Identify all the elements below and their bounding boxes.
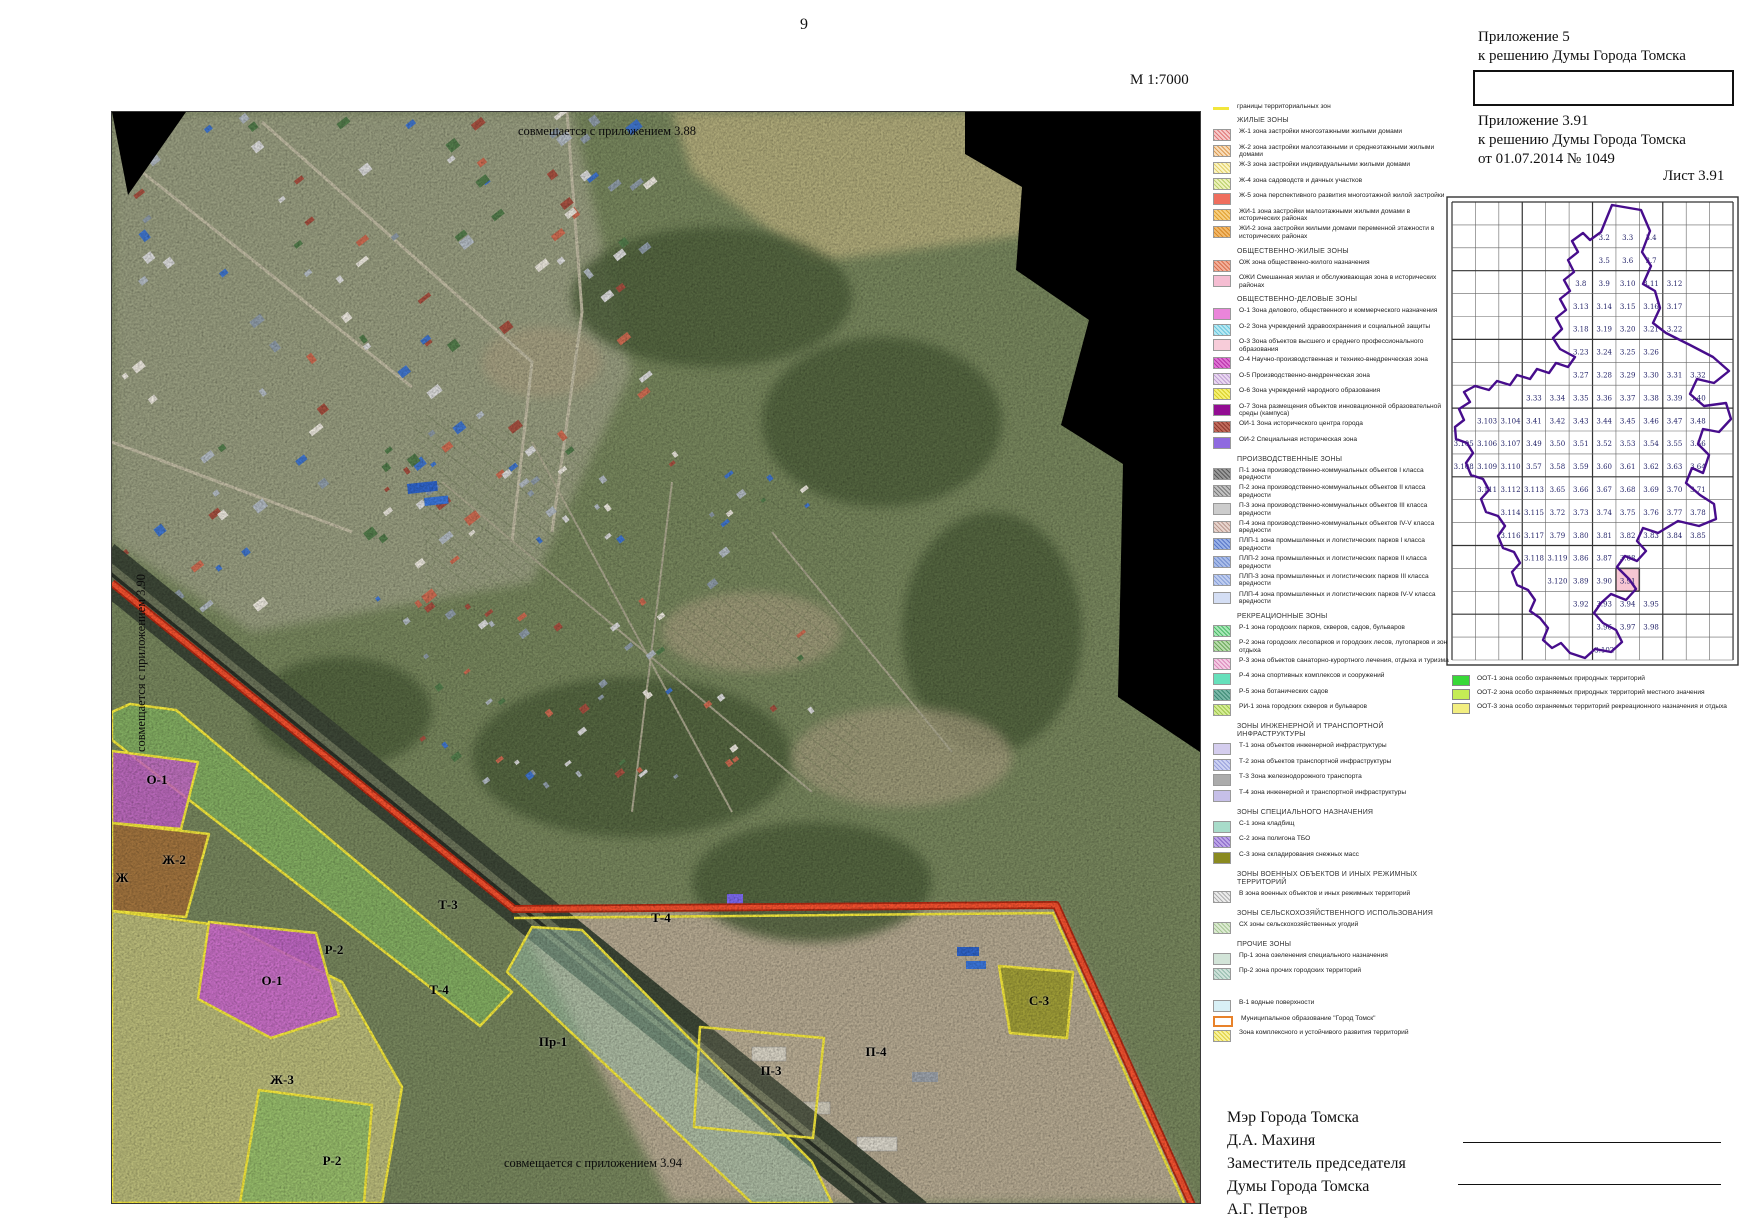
sheet-number: 3.89 — [1573, 578, 1589, 586]
legend-label: ПЛП-2 зона промышленных и логистических … — [1239, 555, 1453, 570]
sheet-number: 3.74 — [1596, 509, 1612, 517]
sheet-number: 3.5 — [1599, 257, 1610, 265]
legend-item: РИ-1 зона городских скверов и бульваров — [1213, 703, 1453, 716]
map-zone-label: С-3 — [1029, 993, 1049, 1009]
map-zone-label: П-3 — [761, 1063, 782, 1079]
legend-item: Р-2 зона городских лесопарков и городски… — [1213, 639, 1453, 654]
sheet-number: 3.19 — [1596, 326, 1612, 334]
sheet-number: 3.86 — [1573, 555, 1589, 563]
legend-label: Т-4 зона инженерной и транспортной инфра… — [1239, 789, 1406, 797]
page-number: 9 — [800, 16, 808, 34]
annex-line3: Приложение 3.91 — [1478, 112, 1748, 131]
legend-label: Зона комплексного и устойчивого развития… — [1239, 1029, 1409, 1037]
official-line: Д.А. Махиня — [1227, 1129, 1487, 1152]
legend-swatch — [1213, 388, 1231, 400]
legend-section-header: ОБЩЕСТВЕННО-ДЕЛОВЫЕ ЗОНЫ — [1237, 296, 1453, 304]
sheet-number: 3.25 — [1620, 349, 1636, 357]
sheet-number: 3.45 — [1620, 417, 1636, 425]
legend-item: О-5 Производственно-внедренческая зона — [1213, 372, 1453, 385]
sheet-number: 3.109 — [1477, 463, 1497, 471]
legend-swatch — [1213, 193, 1231, 205]
legend-item: Муниципальное образование "Город Томск" — [1213, 1015, 1453, 1027]
legend-label: Пр-1 зона озеленения специального назнач… — [1239, 952, 1388, 960]
legend-section-header: ЗОНЫ ВОЕННЫХ ОБЪЕКТОВ И ИНЫХ РЕЖИМНЫХ ТЕ… — [1237, 871, 1453, 887]
legend-section-header: ЗОНЫ СЕЛЬСКОХОЗЯЙСТВЕННОГО ИСПОЛЬЗОВАНИЯ — [1237, 910, 1453, 918]
legend-swatch — [1213, 953, 1231, 965]
legend-swatch — [1213, 178, 1231, 190]
sheet-number: 3.58 — [1550, 463, 1566, 471]
map-zone-label: Р-2 — [323, 1153, 342, 1169]
sheet-number: 3.90 — [1596, 578, 1612, 586]
legend-label: С-2 зона полигона ТБО — [1239, 835, 1310, 843]
legend-swatch — [1213, 485, 1231, 497]
sheet-number: 3.2 — [1599, 234, 1610, 242]
sheet-number: 3.55 — [1667, 440, 1683, 448]
legend-item: СХ зоны сельскохозяйственных угодий — [1213, 921, 1453, 934]
legend-item: ОЖИ Смешанная жилая и обслуживающая зона… — [1213, 274, 1453, 289]
sheet-number: 3.17 — [1667, 303, 1683, 311]
sheet-number: 3.116 — [1501, 532, 1522, 540]
legend-label: Ж-1 зона застройки многоэтажными жилыми … — [1239, 128, 1402, 136]
sheet-number: 3.72 — [1550, 509, 1566, 517]
sheet-number: 3.31 — [1667, 372, 1683, 380]
legend-swatch — [1213, 129, 1231, 141]
legend-label: Муниципальное образование "Город Томск" — [1241, 1015, 1375, 1023]
legend-item: Ж-1 зона застройки многоэтажными жилыми … — [1213, 128, 1453, 141]
aerial-photo-canvas — [112, 112, 1200, 1203]
sheet-index-grid: 3.23.33.43.53.63.73.83.93.103.113.123.13… — [1440, 190, 1750, 680]
sheet-number: 3.13 — [1573, 303, 1589, 311]
legend-swatch — [1213, 774, 1231, 786]
sheet-number: 3.61 — [1620, 463, 1636, 471]
legend-swatch — [1213, 226, 1231, 238]
legend-swatch — [1213, 308, 1231, 320]
sheet-number: 3.80 — [1573, 532, 1589, 540]
sheet-number: 3.73 — [1573, 509, 1589, 517]
legend-label: О-2 Зона учреждений здравоохранения и со… — [1239, 323, 1430, 331]
legend-section-header: ЗОНЫ СПЕЦИАЛЬНОГО НАЗНАЧЕНИЯ — [1237, 809, 1453, 817]
sheet-number: 3.52 — [1596, 440, 1612, 448]
sheet-number: 3.76 — [1643, 509, 1659, 517]
sheet-number: 3.87 — [1596, 555, 1612, 563]
sheet-number: 3.8 — [1575, 280, 1586, 288]
sheet-number: 3.33 — [1526, 394, 1542, 402]
legend-item: С-2 зона полигона ТБО — [1213, 835, 1453, 848]
legend-item: Т-4 зона инженерной и транспортной инфра… — [1213, 789, 1453, 802]
legend-label: ОИ-2 Специальная историческая зона — [1239, 436, 1357, 444]
sheet-number: 3.60 — [1596, 463, 1612, 471]
legend-section-header: ПРОЧИЕ ЗОНЫ — [1237, 941, 1453, 949]
sheet-number: 3.39 — [1667, 394, 1683, 402]
legend-item: ПЛП-2 зона промышленных и логистических … — [1213, 555, 1453, 570]
map-zone-label: О-1 — [147, 772, 168, 788]
legend-item: О-3 Зона объектов высшего и среднего про… — [1213, 338, 1453, 353]
sheet-label: Лист 3.91 — [1663, 168, 1724, 185]
legend-swatch — [1213, 145, 1231, 157]
legend-item: Т-2 зона объектов транспортной инфрастру… — [1213, 758, 1453, 771]
legend-label: О-7 Зона размещения объектов инновационн… — [1239, 403, 1453, 418]
sheet-number: 3.98 — [1643, 623, 1659, 631]
protected-zone-label: ООТ-2 зона особо охраняемых природных те… — [1477, 689, 1705, 696]
legend-label: В зона военных объектов и иных режимных … — [1239, 890, 1410, 898]
legend-item: О-1 Зона делового, общественного и комме… — [1213, 307, 1453, 320]
map-zone-label: П-4 — [866, 1044, 887, 1060]
legend-label: РИ-1 зона городских скверов и бульваров — [1239, 703, 1367, 711]
annex-header-2: Приложение 3.91 к решению Думы Города То… — [1478, 112, 1748, 169]
legend-swatch — [1213, 625, 1231, 637]
map-zone-label: Пр-1 — [539, 1034, 567, 1050]
protected-zone-item: ООТ-1 зона особо охраняемых природных те… — [1452, 675, 1747, 686]
sheet-number: 3.16 — [1643, 303, 1659, 311]
sheet-number: 3.63 — [1667, 463, 1683, 471]
legend-swatch — [1213, 260, 1231, 272]
sheet-number: 3.27 — [1573, 372, 1589, 380]
legend-label: О-4 Научно-производственная и технико-вн… — [1239, 356, 1428, 364]
legend-swatch — [1213, 324, 1231, 336]
legend-label: Пр-2 зона прочих городских территорий — [1239, 967, 1361, 975]
sheet-number: 3.117 — [1524, 532, 1544, 540]
sheet-number: 3.20 — [1620, 326, 1636, 334]
annex-line2: к решению Думы Города Томска — [1478, 47, 1748, 66]
legend-swatch — [1213, 468, 1231, 480]
map-zone-label: О-1 — [262, 973, 283, 989]
legend-item: О-2 Зона учреждений здравоохранения и со… — [1213, 323, 1453, 336]
legend-label: Ж-3 зона застройки индивидуальными жилым… — [1239, 161, 1410, 169]
edge-label-bottom: совмещается с приложением 3.94 — [504, 1156, 682, 1171]
legend-label: Р-5 зона ботанических садов — [1239, 688, 1328, 696]
sheet-number: 3.97 — [1620, 623, 1636, 631]
legend-label: ЖИ-1 зона застройки малоэтажными жилыми … — [1239, 208, 1453, 223]
signature-line — [1458, 1184, 1721, 1185]
legend-label: П-4 зона производственно-коммунальных об… — [1239, 520, 1453, 535]
sheet-number: 3.68 — [1620, 486, 1636, 494]
sheet-number: 3.26 — [1643, 349, 1659, 357]
legend-swatch — [1213, 673, 1231, 685]
sheet-number: 3.6 — [1622, 257, 1634, 265]
legend-section-header: ПРОИЗВОДСТВЕННЫЕ ЗОНЫ — [1237, 456, 1453, 464]
legend: границы территориальных зонЖИЛЫЕ ЗОНЫЖ-1… — [1213, 100, 1453, 1045]
map-zone-label: Т-4 — [651, 910, 671, 926]
legend-item: В зона военных объектов и иных режимных … — [1213, 890, 1453, 903]
sheet-number: 3.77 — [1667, 509, 1683, 517]
legend-item: Т-1 зона объектов инженерной инфраструкт… — [1213, 742, 1453, 755]
sheet-number: 3.42 — [1550, 417, 1566, 425]
protected-zone-swatch — [1452, 675, 1470, 686]
sheet-number: 3.59 — [1573, 463, 1589, 471]
legend-swatch — [1213, 404, 1231, 416]
legend-swatch — [1213, 922, 1231, 934]
legend-label: ПЛП-1 зона промышленных и логистических … — [1239, 537, 1453, 552]
legend-label: ПЛП-4 зона промышленных и логистических … — [1239, 591, 1453, 606]
sheet-number: 3.120 — [1547, 578, 1567, 586]
legend-swatch — [1213, 339, 1231, 351]
legend-swatch — [1213, 538, 1231, 550]
map-zone-label: Ж — [116, 870, 129, 886]
legend-label: С-3 зона складирования снежных масс — [1239, 851, 1359, 859]
legend-label: Р-3 зона объектов санаторно-курортного л… — [1239, 657, 1449, 665]
legend-label: границы территориальных зон — [1237, 103, 1331, 111]
sheet-number: 3.46 — [1643, 417, 1659, 425]
legend-swatch — [1213, 209, 1231, 221]
sheet-number: 3.23 — [1573, 349, 1589, 357]
protected-zone-item: ООТ-2 зона особо охраняемых природных те… — [1452, 689, 1747, 700]
map-zone-label: Т-4 — [429, 982, 449, 998]
protected-zones-legend: ООТ-1 зона особо охраняемых природных те… — [1452, 672, 1747, 717]
sheet-number: 3.49 — [1526, 440, 1542, 448]
legend-label: Т-2 зона объектов транспортной инфрастру… — [1239, 758, 1391, 766]
legend-swatch — [1213, 689, 1231, 701]
legend-item: границы территориальных зон — [1213, 103, 1453, 111]
sheet-number: 3.119 — [1547, 555, 1567, 563]
legend-swatch — [1213, 421, 1231, 433]
sheet-number: 3.35 — [1573, 394, 1589, 402]
legend-label: П-3 зона производственно-коммунальных об… — [1239, 502, 1453, 517]
legend-swatch — [1213, 275, 1231, 287]
legend-section-header: ОБЩЕСТВЕННО-ЖИЛЫЕ ЗОНЫ — [1237, 248, 1453, 256]
sheet-number: 3.47 — [1667, 417, 1683, 425]
map-zone-label: Т-3 — [438, 897, 458, 913]
sheet-number: 3.57 — [1526, 463, 1542, 471]
legend-label: ОИ-1 Зона исторического центра города — [1239, 420, 1363, 428]
official-line: А.Г. Петров — [1227, 1198, 1487, 1221]
legend-label: В-1 водные поверхности — [1239, 999, 1314, 1007]
sheet-number: 3.12 — [1667, 280, 1683, 288]
sheet-number: 3.36 — [1596, 394, 1612, 402]
legend-item: В-1 водные поверхности — [1213, 999, 1453, 1012]
legend-item: ОИ-1 Зона исторического центра города — [1213, 420, 1453, 433]
sheet-number: 3.82 — [1620, 532, 1636, 540]
legend-label: Ж-5 зона перспективного развития многоэт… — [1239, 192, 1444, 200]
legend-swatch — [1213, 640, 1231, 652]
sheet-number: 3.103 — [1477, 417, 1497, 425]
legend-swatch — [1213, 1016, 1233, 1027]
legend-item: Пр-1 зона озеленения специального назнач… — [1213, 952, 1453, 965]
annex-header: Приложение 5 к решению Думы Города Томск… — [1478, 28, 1748, 66]
officials-signatures: Мэр Города Томска Д.А. Махиня Заместител… — [1227, 1106, 1487, 1221]
legend-swatch — [1213, 836, 1231, 848]
edge-label-top: совмещается с приложением 3.88 — [518, 124, 696, 139]
legend-swatch — [1213, 592, 1231, 604]
legend-swatch — [1213, 357, 1231, 369]
legend-swatch — [1213, 759, 1231, 771]
legend-item: Ж-5 зона перспективного развития многоэт… — [1213, 192, 1453, 205]
sheet-number: 3.78 — [1690, 509, 1706, 517]
sheet-number: 3.10 — [1620, 280, 1636, 288]
legend-label: Ж-4 зона садоводств и дачных участков — [1239, 177, 1362, 185]
protected-zone-swatch — [1452, 689, 1470, 700]
sheet-number: 3.38 — [1643, 394, 1659, 402]
legend-item: Ж-2 зона застройки малоэтажными и средне… — [1213, 144, 1453, 159]
legend-label: Р-4 зона спортивных комплексов и сооруже… — [1239, 672, 1384, 680]
sheet-number: 3.22 — [1667, 326, 1683, 334]
sheet-number: 3.14 — [1596, 303, 1612, 311]
legend-label: С-1 зона кладбищ — [1239, 820, 1294, 828]
legend-label: СХ зоны сельскохозяйственных угодий — [1239, 921, 1358, 929]
legend-item: ОЖ зона общественно-жилого назначения — [1213, 259, 1453, 272]
sheet-number: 3.107 — [1501, 440, 1521, 448]
sheet-number: 3.50 — [1550, 440, 1566, 448]
sheet-number: 3.94 — [1620, 601, 1636, 609]
legend-section-header: ЗОНЫ ИНЖЕНЕРНОЙ И ТРАНСПОРТНОЙ ИНФРАСТРУ… — [1237, 723, 1453, 739]
sheet-number: 3.115 — [1524, 509, 1544, 517]
legend-swatch — [1213, 852, 1231, 864]
legend-swatch — [1213, 521, 1231, 533]
signature-line — [1463, 1142, 1721, 1143]
sheet-number: 3.3 — [1622, 234, 1633, 242]
annex-line4: к решению Думы Города Томска — [1478, 131, 1748, 150]
sheet-number: 3.75 — [1620, 509, 1636, 517]
legend-item: П-2 зона производственно-коммунальных об… — [1213, 484, 1453, 499]
official-line: Мэр Города Томска — [1227, 1106, 1487, 1129]
sheet-number: 3.70 — [1667, 486, 1683, 494]
protected-zone-label: ООТ-1 зона особо охраняемых природных те… — [1477, 675, 1645, 682]
legend-swatch — [1213, 107, 1229, 110]
legend-swatch — [1213, 704, 1231, 716]
legend-item: ЖИ-1 зона застройки малоэтажными жилыми … — [1213, 208, 1453, 223]
legend-section-header: ЖИЛЫЕ ЗОНЫ — [1237, 117, 1453, 125]
legend-item: Р-3 зона объектов санаторно-курортного л… — [1213, 657, 1453, 670]
legend-swatch — [1213, 574, 1231, 586]
legend-item: Р-1 зона городских парков, скверов, садо… — [1213, 624, 1453, 637]
stamp-box — [1473, 70, 1734, 106]
legend-label: Т-3 Зона железнодорожного транспорта — [1239, 773, 1362, 781]
sheet-number: 3.51 — [1573, 440, 1589, 448]
legend-item: С-1 зона кладбищ — [1213, 820, 1453, 833]
sheet-number: 3.104 — [1501, 417, 1522, 425]
sheet-number: 3.65 — [1550, 486, 1566, 494]
legend-swatch — [1213, 373, 1231, 385]
sheet-number: 3.28 — [1596, 372, 1612, 380]
legend-swatch — [1213, 162, 1231, 174]
sheet-number: 3.114 — [1501, 509, 1522, 517]
legend-spacer — [1213, 983, 1453, 997]
legend-label: П-2 зона производственно-коммунальных об… — [1239, 484, 1453, 499]
sheet-number: 3.110 — [1501, 463, 1521, 471]
legend-item: П-3 зона производственно-коммунальных об… — [1213, 502, 1453, 517]
legend-label: ПЛП-3 зона промышленных и логистических … — [1239, 573, 1453, 588]
sheet-number: 3.37 — [1620, 394, 1636, 402]
sheet-number: 3.108 — [1454, 463, 1474, 471]
legend-swatch — [1213, 743, 1231, 755]
photo-grain — [112, 112, 1200, 1203]
zoning-map-sheet: { "page": {"number": "9", "scale_label":… — [0, 0, 1754, 1227]
sheet-number: 3.34 — [1550, 394, 1566, 402]
sheet-number: 3.29 — [1620, 372, 1636, 380]
sheet-number: 3.9 — [1599, 280, 1610, 288]
legend-item: ПЛП-3 зона промышленных и логистических … — [1213, 573, 1453, 588]
legend-swatch — [1213, 821, 1231, 833]
sheet-number: 3.81 — [1596, 532, 1612, 540]
sheet-number: 3.53 — [1620, 440, 1636, 448]
sheet-number: 3.112 — [1501, 486, 1521, 494]
legend-item: О-6 Зона учреждений народного образовани… — [1213, 387, 1453, 400]
legend-item: С-3 зона складирования снежных масс — [1213, 851, 1453, 864]
legend-swatch — [1213, 1030, 1231, 1042]
legend-label: ОЖ зона общественно-жилого назначения — [1239, 259, 1370, 267]
sheet-number: 3.15 — [1620, 303, 1636, 311]
legend-item: О-4 Научно-производственная и технико-вн… — [1213, 356, 1453, 369]
protected-zone-swatch — [1452, 703, 1470, 714]
aerial-zoning-map: совмещается с приложением 3.88 совмещает… — [112, 112, 1200, 1203]
legend-label: О-1 Зона делового, общественного и комме… — [1239, 307, 1437, 315]
legend-label: Ж-2 зона застройки малоэтажными и средне… — [1239, 144, 1453, 159]
official-line: Заместитель председателя — [1227, 1152, 1487, 1175]
legend-item: Р-5 зона ботанических садов — [1213, 688, 1453, 701]
protected-zone-label: ООТ-3 зона особо охраняемых территорий р… — [1477, 703, 1727, 710]
legend-label: ОЖИ Смешанная жилая и обслуживающая зона… — [1239, 274, 1453, 289]
sheet-number: 3.43 — [1573, 417, 1589, 425]
map-zone-label: Ж-2 — [162, 852, 186, 868]
legend-swatch — [1213, 968, 1231, 980]
sheet-number: 3.18 — [1573, 326, 1589, 334]
legend-swatch — [1213, 556, 1231, 568]
sheet-number: 3.69 — [1643, 486, 1659, 494]
legend-label: ЖИ-2 зона застройки жилыми домами переме… — [1239, 225, 1453, 240]
sheet-number: 3.67 — [1596, 486, 1612, 494]
sheet-number: 3.79 — [1550, 532, 1566, 540]
legend-label: О-5 Производственно-внедренческая зона — [1239, 372, 1370, 380]
legend-swatch — [1213, 658, 1231, 670]
legend-label: Р-1 зона городских парков, скверов, садо… — [1239, 624, 1405, 632]
official-line: Думы Города Томска — [1227, 1175, 1487, 1198]
legend-item: Ж-3 зона застройки индивидуальными жилым… — [1213, 161, 1453, 174]
sheet-number: 3.48 — [1690, 417, 1706, 425]
legend-swatch — [1213, 437, 1231, 449]
legend-item: ЖИ-2 зона застройки жилыми домами переме… — [1213, 225, 1453, 240]
legend-label: О-3 Зона объектов высшего и среднего про… — [1239, 338, 1453, 353]
legend-section-header: РЕКРЕАЦИОННЫЕ ЗОНЫ — [1237, 613, 1453, 621]
legend-label: Т-1 зона объектов инженерной инфраструкт… — [1239, 742, 1387, 750]
sheet-number: 3.84 — [1667, 532, 1683, 540]
legend-swatch — [1213, 1000, 1231, 1012]
sheet-number: 3.95 — [1643, 601, 1659, 609]
legend-item: Т-3 Зона железнодорожного транспорта — [1213, 773, 1453, 786]
legend-item: Зона комплексного и устойчивого развития… — [1213, 1029, 1453, 1042]
sheet-number: 3.113 — [1524, 486, 1544, 494]
legend-label: Р-2 зона городских лесопарков и городски… — [1239, 639, 1453, 654]
annex-line1: Приложение 5 — [1478, 28, 1748, 47]
sheet-number: 3.41 — [1526, 417, 1542, 425]
sheet-number: 3.92 — [1573, 601, 1589, 609]
legend-swatch — [1213, 503, 1231, 515]
legend-item: Ж-4 зона садоводств и дачных участков — [1213, 177, 1453, 190]
legend-item: ОИ-2 Специальная историческая зона — [1213, 436, 1453, 449]
legend-label: О-6 Зона учреждений народного образовани… — [1239, 387, 1380, 395]
sheet-number: 3.106 — [1477, 440, 1498, 448]
sheet-number: 3.54 — [1643, 440, 1659, 448]
sheet-number: 3.24 — [1596, 349, 1612, 357]
legend-item: П-4 зона производственно-коммунальных об… — [1213, 520, 1453, 535]
legend-item: П-1 зона производственно-коммунальных об… — [1213, 467, 1453, 482]
legend-item: ПЛП-4 зона промышленных и логистических … — [1213, 591, 1453, 606]
edge-label-left: совмещается с приложением 3.90 — [134, 574, 149, 752]
map-zone-label: Р-2 — [325, 942, 344, 958]
sheet-number: 3.44 — [1596, 417, 1612, 425]
map-scale-label: М 1:7000 — [1130, 72, 1189, 89]
legend-swatch — [1213, 891, 1231, 903]
protected-zone-item: ООТ-3 зона особо охраняемых территорий р… — [1452, 703, 1747, 714]
legend-item: Пр-2 зона прочих городских территорий — [1213, 967, 1453, 980]
sheet-number: 3.30 — [1643, 372, 1659, 380]
legend-label: П-1 зона производственно-коммунальных об… — [1239, 467, 1453, 482]
sheet-number: 3.118 — [1524, 555, 1544, 563]
sheet-number: 3.66 — [1573, 486, 1589, 494]
annex-line5: от 01.07.2014 № 1049 — [1478, 150, 1748, 169]
legend-item: ПЛП-1 зона промышленных и логистических … — [1213, 537, 1453, 552]
sheet-number: 3.62 — [1643, 463, 1659, 471]
legend-item: О-7 Зона размещения объектов инновационн… — [1213, 403, 1453, 418]
sheet-number: 3.85 — [1690, 532, 1706, 540]
